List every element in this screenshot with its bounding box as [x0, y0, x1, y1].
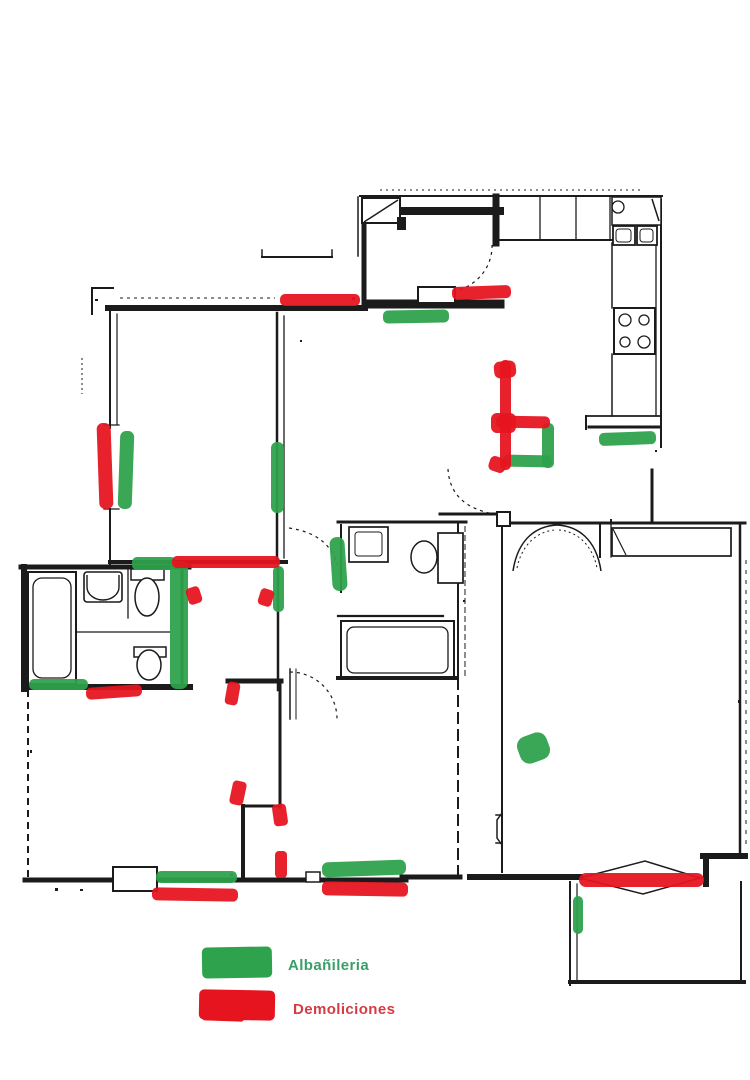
scan-speck [738, 700, 741, 703]
fixture-outline [612, 528, 731, 556]
scan-speck [30, 750, 32, 753]
plan-curve [290, 672, 337, 719]
demolition-mark [452, 285, 511, 300]
plan-curve [613, 529, 626, 555]
masonry-mark [156, 871, 237, 883]
demolition-mark [280, 294, 360, 306]
fixture-outline [355, 532, 382, 556]
demolition-mark [97, 423, 114, 509]
demolition-mark [152, 887, 238, 901]
demolition-mark [496, 416, 550, 429]
fixture-bowl [411, 541, 437, 573]
plan-curve [559, 530, 597, 568]
albanileria-swatch [202, 946, 273, 978]
fixture-outline [341, 621, 454, 678]
masonry-mark [322, 860, 406, 878]
scan-speck [55, 888, 58, 891]
demoliciones-swatch-tail [202, 1011, 244, 1021]
fixture-bowl [137, 650, 161, 680]
fixture-panel [113, 867, 157, 891]
plan-curve [448, 469, 494, 514]
fixture-panel [497, 512, 510, 526]
plan-curve [455, 245, 492, 291]
demolition-mark [493, 360, 517, 379]
scan-speck [300, 340, 302, 342]
demolition-mark [224, 681, 241, 706]
fixture-panel [418, 287, 455, 303]
masonry-mark [273, 566, 284, 612]
fixture-panel [438, 533, 463, 583]
floor-plan-svg [0, 0, 750, 1080]
masonry-mark [383, 309, 449, 323]
demolition-mark [172, 556, 280, 568]
scan-speck [655, 450, 657, 452]
plan-curve [557, 525, 601, 571]
masonry-mark [132, 557, 176, 570]
scan-speck [95, 299, 98, 301]
scan-speck [397, 217, 406, 230]
plan-curve [87, 575, 119, 600]
masonry-mark [573, 896, 583, 934]
fixture-outline [33, 578, 71, 678]
fixture-panel [306, 872, 320, 882]
plan-curve [513, 525, 557, 571]
fixture-outline [84, 572, 122, 602]
masonry-mark [118, 431, 135, 509]
plan-curve [517, 530, 555, 568]
masonry-mark [29, 679, 88, 690]
masonry-mark [599, 431, 656, 446]
fixture-outline [28, 572, 76, 684]
fixture-outline [347, 627, 448, 673]
albanileria-label: Albañileria [288, 957, 369, 974]
demolition-mark [272, 803, 289, 827]
demolition-mark [275, 851, 287, 878]
demolition-mark [579, 873, 704, 887]
masonry-mark [329, 537, 348, 592]
scan-speck [463, 600, 465, 602]
fixture-panel [614, 308, 655, 354]
scan-speck [80, 889, 83, 891]
fixture-bowl [135, 578, 159, 616]
floor-plan-page: Albañileria Demoliciones [0, 0, 750, 1080]
masonry-mark [271, 442, 284, 513]
demolition-mark [322, 881, 408, 896]
demoliciones-label: Demoliciones [293, 1001, 395, 1018]
masonry-mark [170, 561, 188, 689]
scan-speck [610, 519, 612, 522]
demolition-mark [257, 587, 276, 607]
masonry-mark [514, 730, 553, 767]
demolition-mark [229, 780, 248, 806]
